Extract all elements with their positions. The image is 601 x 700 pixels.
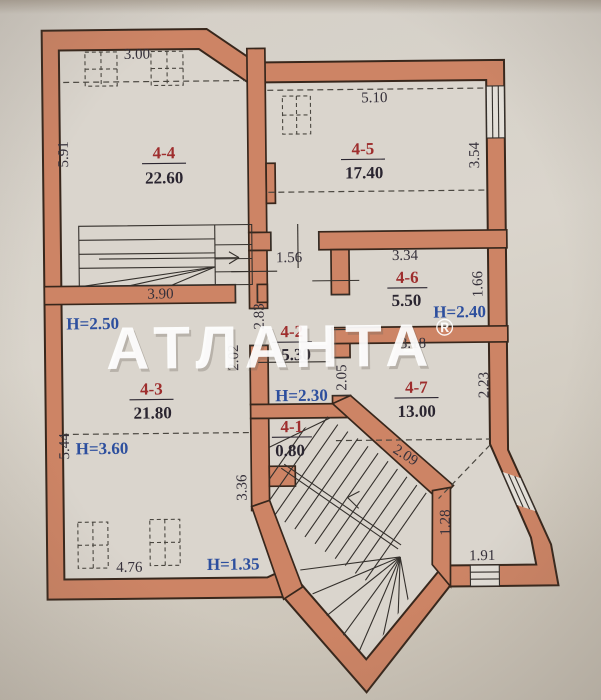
floorplan-photo: 4-4 22.60 4-5 17.40 4-6 5.50 4-2 5.30 4-… <box>0 0 601 700</box>
floorplan-svg: 4-4 22.60 4-5 17.40 4-6 5.50 4-2 5.30 4-… <box>0 0 601 700</box>
photo-vignette <box>0 0 601 700</box>
